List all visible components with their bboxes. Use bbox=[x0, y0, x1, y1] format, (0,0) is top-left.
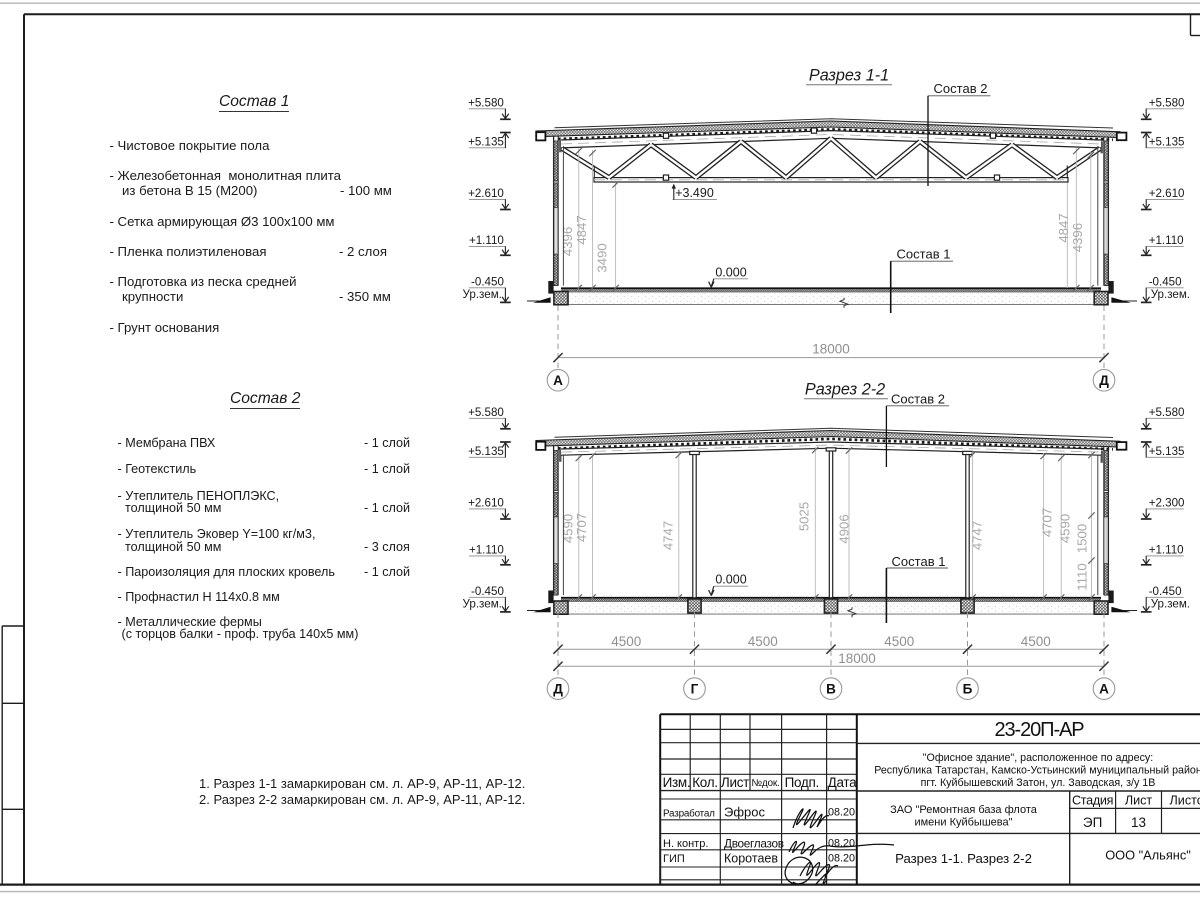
svg-text:4590: 4590 bbox=[1058, 514, 1073, 543]
svg-text:18000: 18000 bbox=[812, 341, 850, 356]
svg-text:4707: 4707 bbox=[574, 513, 589, 542]
svg-text:4396: 4396 bbox=[1070, 223, 1085, 252]
svg-text:08.20: 08.20 bbox=[828, 837, 855, 849]
svg-text:+5.135: +5.135 bbox=[468, 135, 504, 148]
svg-text:Эфрос: Эфрос bbox=[724, 805, 765, 820]
svg-text:+2.300: +2.300 bbox=[1149, 497, 1185, 510]
svg-text:Лист: Лист bbox=[1125, 793, 1153, 807]
svg-text:-0.450: -0.450 bbox=[471, 275, 504, 288]
svg-text:пгт. Куйбышевский Затон, ул. З: пгт. Куйбышевский Затон, ул. Заводская, … bbox=[921, 777, 1156, 789]
svg-text:4906: 4906 bbox=[837, 514, 852, 543]
svg-text:4500: 4500 bbox=[748, 634, 778, 649]
svg-text:18000: 18000 bbox=[838, 651, 876, 666]
svg-text:Дата: Дата bbox=[828, 775, 857, 790]
svg-text:Разрез 1-1. Разрез 2-2: Разрез 1-1. Разрез 2-2 bbox=[895, 851, 1032, 866]
svg-text:ЗАО "Ремонтная база флота: ЗАО "Ремонтная база флота bbox=[890, 804, 1038, 816]
svg-text:№док.: №док. bbox=[751, 778, 779, 789]
svg-text:Разрез 1-1: Разрез 1-1 bbox=[809, 67, 889, 85]
svg-text:+5.580: +5.580 bbox=[1149, 96, 1185, 109]
svg-text:23-20П-АР: 23-20П-АР bbox=[995, 719, 1085, 741]
svg-text:4747: 4747 bbox=[661, 521, 676, 550]
svg-text:Ур.зем.: Ур.зем. bbox=[463, 288, 502, 301]
svg-text:+5.135: +5.135 bbox=[1149, 445, 1185, 458]
svg-text:имени Куйбышева": имени Куйбышева" bbox=[914, 817, 1012, 829]
svg-text:-0.450: -0.450 bbox=[1149, 585, 1182, 598]
svg-text:+5.580: +5.580 bbox=[468, 96, 504, 109]
svg-text:"Офисное здание", расположенно: "Офисное здание", расположенное по адрес… bbox=[923, 752, 1153, 764]
svg-text:4747: 4747 bbox=[970, 521, 985, 550]
svg-text:4590: 4590 bbox=[560, 514, 575, 543]
svg-text:1110: 1110 bbox=[1075, 563, 1090, 590]
svg-text:Коротаев: Коротаев bbox=[724, 851, 778, 865]
svg-text:Ур.зем.: Ур.зем. bbox=[1151, 288, 1190, 301]
svg-text:5025: 5025 bbox=[797, 502, 812, 531]
svg-text:4500: 4500 bbox=[884, 634, 914, 649]
svg-text:4707: 4707 bbox=[1040, 508, 1055, 537]
svg-text:08.20: 08.20 bbox=[828, 853, 855, 865]
svg-text:08.20: 08.20 bbox=[828, 806, 855, 818]
svg-text:+1.110: +1.110 bbox=[469, 544, 504, 557]
svg-text:Состав 2: Состав 2 bbox=[891, 391, 945, 406]
svg-text:Н. контр.: Н. контр. bbox=[663, 838, 708, 850]
svg-text:В: В bbox=[826, 681, 836, 696]
svg-text:Кол.: Кол. bbox=[692, 775, 718, 790]
svg-text:Состав 2: Состав 2 bbox=[934, 81, 988, 96]
svg-text:+1.110: +1.110 bbox=[1149, 544, 1184, 557]
svg-text:А: А bbox=[553, 373, 563, 388]
svg-text:Д: Д bbox=[1099, 373, 1109, 388]
svg-text:Лист: Лист bbox=[721, 775, 749, 790]
svg-text:0.000: 0.000 bbox=[715, 573, 746, 587]
svg-text:4396: 4396 bbox=[560, 227, 575, 256]
svg-text:Разработал: Разработал bbox=[663, 808, 715, 819]
svg-text:1500: 1500 bbox=[1075, 524, 1090, 553]
svg-text:+5.580: +5.580 bbox=[468, 406, 504, 419]
svg-text:4847: 4847 bbox=[1056, 213, 1071, 242]
svg-text:-0.450: -0.450 bbox=[471, 585, 504, 598]
svg-text:+2.610: +2.610 bbox=[468, 497, 504, 510]
svg-text:Ур.зем.: Ур.зем. bbox=[1151, 598, 1190, 611]
svg-text:ООО "Альянс": ООО "Альянс" bbox=[1105, 848, 1191, 863]
svg-text:Республика Татарстан, Камско-У: Республика Татарстан, Камско-Устьинский … bbox=[874, 764, 1200, 776]
svg-text:ЭП: ЭП bbox=[1083, 815, 1102, 830]
svg-text:Б: Б bbox=[963, 681, 973, 696]
svg-text:Изм.: Изм. bbox=[663, 775, 691, 790]
svg-text:Стадия: Стадия bbox=[1072, 793, 1113, 807]
svg-text:+5.135: +5.135 bbox=[468, 445, 504, 458]
svg-text:+5.580: +5.580 bbox=[1149, 406, 1185, 419]
svg-text:3490: 3490 bbox=[594, 243, 609, 272]
svg-text:А: А bbox=[1099, 681, 1109, 696]
svg-text:Состав 1: Состав 1 bbox=[897, 246, 951, 261]
svg-text:Подп.: Подп. bbox=[785, 775, 819, 790]
svg-text:+2.610: +2.610 bbox=[1149, 187, 1185, 200]
svg-text:+2.610: +2.610 bbox=[468, 187, 504, 200]
svg-text:ГИП: ГИП bbox=[663, 853, 685, 865]
svg-text:4500: 4500 bbox=[1021, 634, 1051, 649]
svg-text:0.000: 0.000 bbox=[715, 266, 746, 280]
svg-text:4500: 4500 bbox=[611, 634, 641, 649]
svg-text:Состав 1: Состав 1 bbox=[892, 554, 946, 569]
svg-text:Листов: Листов bbox=[1170, 793, 1200, 807]
svg-text:Д: Д bbox=[553, 681, 563, 696]
svg-text:Разрез 2-2: Разрез 2-2 bbox=[805, 380, 885, 398]
svg-text:+3.490: +3.490 bbox=[675, 186, 714, 200]
svg-text:+1.110: +1.110 bbox=[1149, 234, 1184, 247]
svg-text:Двоеглазов: Двоеглазов bbox=[724, 836, 784, 850]
svg-text:+5.135: +5.135 bbox=[1149, 135, 1185, 148]
svg-text:-0.450: -0.450 bbox=[1149, 275, 1182, 288]
svg-text:Г: Г bbox=[691, 681, 699, 696]
svg-text:+1.110: +1.110 bbox=[469, 234, 504, 247]
svg-text:Ур.зем.: Ур.зем. bbox=[463, 598, 502, 611]
svg-text:4847: 4847 bbox=[574, 215, 589, 244]
svg-text:13: 13 bbox=[1131, 815, 1146, 830]
